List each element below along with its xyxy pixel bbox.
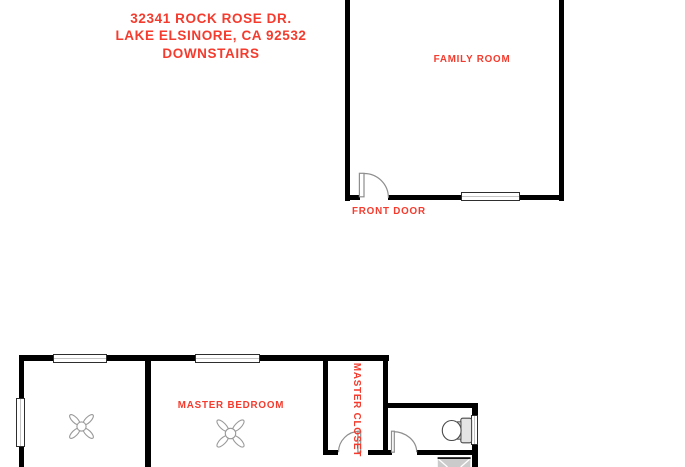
wall-bedroom-divider <box>145 355 151 467</box>
wall-bottom-segment-3 <box>417 450 472 455</box>
wall-family-room-left <box>345 0 350 201</box>
shower <box>438 457 471 467</box>
window-bedroom-top-left <box>53 354 106 363</box>
ceiling-fan-master-bedroom <box>215 418 246 449</box>
address-line-3: DOWNSTAIRS <box>11 45 411 62</box>
wall-family-room-right <box>559 0 565 201</box>
ceiling-fan-bedroom <box>68 413 95 440</box>
window-family-room <box>461 192 521 201</box>
window-bedroom-left <box>16 398 25 446</box>
wall-bathroom-top <box>388 403 477 408</box>
front-door-swing <box>359 173 388 197</box>
bathroom-door <box>392 431 417 452</box>
wall-bottom-segment-1 <box>323 450 339 455</box>
wall-master-closet-left <box>323 355 329 455</box>
address-line-2: LAKE ELSINORE, CA 92532 <box>11 27 411 44</box>
toilet <box>442 418 471 443</box>
wall-bottom-segment-2 <box>368 450 391 455</box>
fixtures-layer <box>0 0 685 467</box>
wall-family-room-bottom-left <box>345 195 360 200</box>
master-bedroom-label: MASTER BEDROOM <box>178 400 284 411</box>
front-door-label: FRONT DOOR <box>352 206 426 217</box>
master-closet-label: MASTER CLOSET <box>351 363 362 457</box>
floor-plan: 32341 ROCK ROSE DR. LAKE ELSINORE, CA 92… <box>0 0 685 467</box>
window-master-bedroom-top <box>195 354 261 363</box>
family-room-label: FAMILY ROOM <box>434 54 511 65</box>
window-bathroom <box>471 415 478 445</box>
address-line-1: 32341 ROCK ROSE DR. <box>11 10 411 27</box>
address-block: 32341 ROCK ROSE DR. LAKE ELSINORE, CA 92… <box>11 10 411 62</box>
